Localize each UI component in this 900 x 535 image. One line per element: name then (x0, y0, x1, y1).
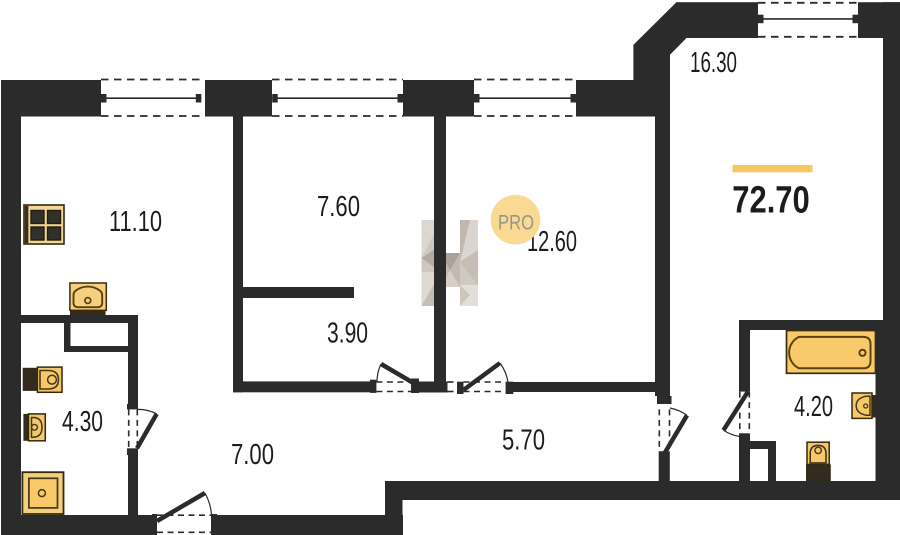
svg-text:11.10: 11.10 (109, 206, 162, 238)
svg-text:72.70: 72.70 (732, 180, 810, 222)
svg-text:16.30: 16.30 (690, 47, 737, 79)
svg-text:4.20: 4.20 (794, 391, 833, 423)
svg-text:7.60: 7.60 (317, 191, 360, 223)
svg-text:PRO: PRO (498, 212, 534, 235)
svg-text:4.30: 4.30 (62, 406, 103, 438)
svg-text:5.70: 5.70 (502, 425, 545, 457)
svg-text:7.00: 7.00 (231, 439, 274, 471)
svg-text:3.90: 3.90 (327, 318, 368, 350)
